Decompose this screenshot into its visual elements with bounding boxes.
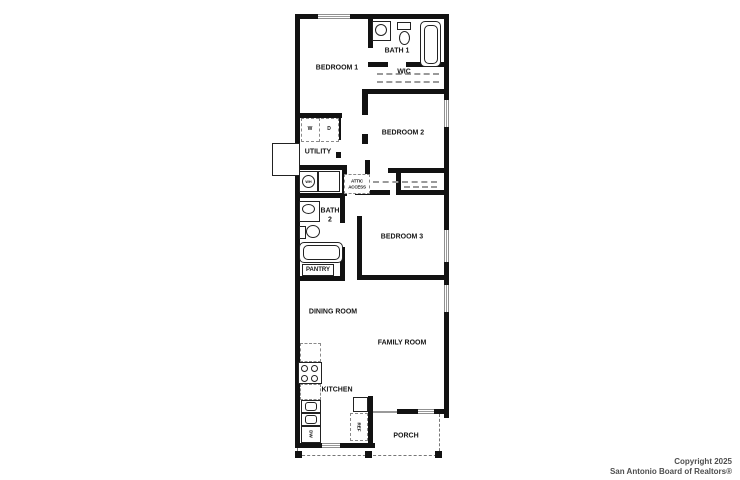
wall [368,396,373,448]
copyright-watermark: Copyright 2025 San Antonio Board of Real… [610,457,732,477]
bath2-tub-inner [303,245,340,260]
copyright-line1: Copyright 2025 [610,457,732,467]
porch-outline [439,414,440,456]
burner-icon [301,365,308,372]
washer-dryer-divider [319,118,320,142]
wall [295,165,342,170]
porch-post [435,451,442,458]
window [444,230,449,262]
wall [397,409,418,414]
exterior-bump-out [272,143,300,176]
sink-basin [305,415,317,424]
refrigerator-label: REF [357,423,362,432]
wall [336,152,341,158]
wall [362,134,368,144]
burner-icon [311,365,318,372]
wall [357,275,444,280]
room-label-porch: PORCH [393,433,418,440]
sink-basin [305,402,317,411]
closet-rod [404,186,437,188]
kitchen-cabinet [353,397,368,412]
wall [295,276,345,281]
room-label-bath2: BATH 2 [318,207,342,225]
kitchen-counter [300,384,321,400]
wall [434,409,449,414]
room-label-dining: DINING ROOM [309,309,357,316]
burner-icon [301,375,308,382]
room-label-family: FAMILY ROOM [378,340,427,347]
room-label-wic: WIC [397,69,411,76]
wall [444,14,449,418]
washer-label: W [308,126,313,132]
window [418,409,434,414]
wall [295,193,345,198]
burner-icon [311,375,318,382]
kitchen-counter [300,343,321,362]
bath1-toilet-bowl-icon [399,31,410,45]
bath1-toilet-tank-icon [397,22,411,30]
room-label-bedroom3: BEDROOM 3 [381,234,423,241]
room-label-bedroom2: BEDROOM 2 [382,130,424,137]
porch-post [365,451,372,458]
room-label-utility: UTILITY [305,149,331,156]
dishwasher-label: DW [309,430,314,438]
wall [368,62,388,67]
wall [357,216,362,280]
wall [398,190,444,195]
bath2-toilet-tank-icon [299,226,306,239]
water-heater-label: WH [305,180,311,184]
wall [362,89,368,115]
window [322,443,340,448]
closet-rod [373,181,437,183]
floor-plan-image: W D WH ATTIC ACCESS PANTRY DW REF BEDROO… [0,0,740,480]
bath1-tub-inner [424,25,438,64]
wall [366,89,444,94]
room-label-bath1: BATH 1 [385,48,410,55]
window [444,285,449,312]
door-threshold [373,411,397,413]
attic-access-label: ATTIC ACCESS [347,178,367,189]
dryer-label: D [327,126,331,132]
closet-rod [377,81,439,83]
bath2-sink-icon [302,204,315,214]
window [318,14,350,19]
closet-box [318,171,340,192]
room-label-bedroom1: BEDROOM 1 [316,65,358,72]
copyright-line2: San Antonio Board of Realtors® [610,467,732,477]
bath1-sink-icon [375,24,387,36]
room-label-kitchen: KITCHEN [321,387,352,394]
pantry-label: PANTRY [306,267,330,273]
porch-post [295,451,302,458]
bath2-toilet-bowl-icon [306,225,320,238]
window [444,100,449,127]
